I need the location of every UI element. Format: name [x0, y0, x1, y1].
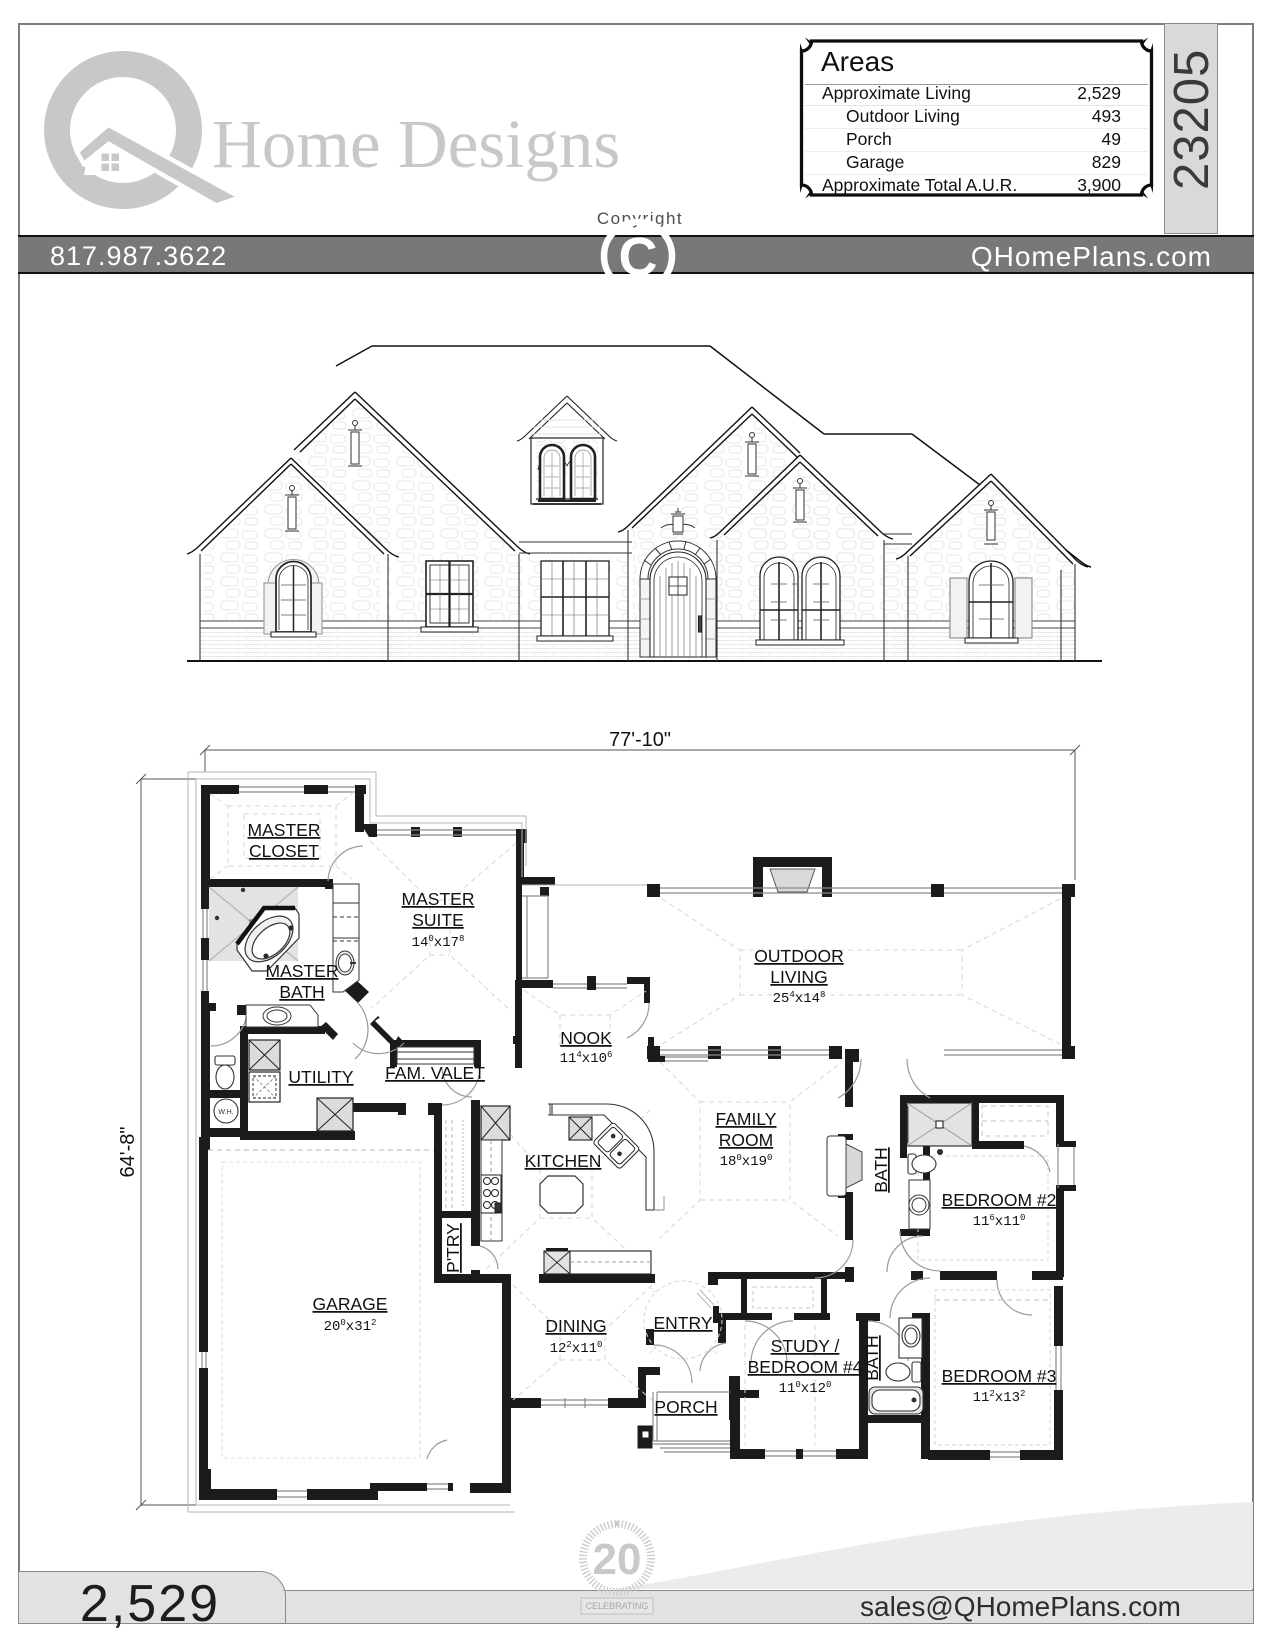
svg-text:NOOK: NOOK	[560, 1028, 612, 1048]
svg-text:FAMILY: FAMILY	[716, 1109, 777, 1129]
svg-text:FAM. VALET: FAM. VALET	[385, 1063, 485, 1083]
svg-text:W.H.: W.H.	[218, 1109, 233, 1116]
svg-text:140x178: 140x178	[412, 934, 465, 951]
svg-text:MASTER: MASTER	[266, 961, 339, 981]
svg-text:P'TRY: P'TRY	[443, 1223, 463, 1273]
svg-text:116x110: 116x110	[973, 1213, 1026, 1230]
svg-text:MASTER: MASTER	[402, 889, 475, 909]
svg-text:122x110: 122x110	[550, 1340, 603, 1357]
svg-text:114x106: 114x106	[560, 1050, 613, 1067]
svg-text:77'-10": 77'-10"	[609, 729, 671, 751]
svg-text:110x120: 110x120	[779, 1380, 832, 1397]
svg-text:GARAGE: GARAGE	[313, 1294, 388, 1314]
svg-text:112x132: 112x132	[973, 1389, 1026, 1406]
svg-text:LIVING: LIVING	[770, 967, 827, 987]
svg-text:BEDROOM #3: BEDROOM #3	[942, 1366, 1057, 1386]
svg-text:64'-8": 64'-8"	[117, 1127, 139, 1178]
svg-text:BATH: BATH	[862, 1335, 882, 1380]
svg-text:ENTRY: ENTRY	[654, 1313, 713, 1333]
svg-text:OUTDOOR: OUTDOOR	[754, 946, 843, 966]
svg-text:PORCH: PORCH	[654, 1397, 717, 1417]
svg-text:UTILITY: UTILITY	[288, 1067, 353, 1087]
svg-text:200x312: 200x312	[324, 1318, 377, 1335]
svg-text:254x148: 254x148	[773, 990, 826, 1007]
svg-text:KITCHEN: KITCHEN	[525, 1151, 602, 1171]
svg-text:CELEBRATING: CELEBRATING	[586, 1601, 649, 1611]
svg-text:DINING: DINING	[545, 1316, 606, 1336]
svg-text:BATH: BATH	[871, 1147, 891, 1192]
svg-text:20: 20	[593, 1535, 642, 1584]
svg-text:STUDY /: STUDY /	[771, 1336, 840, 1356]
svg-text:SUITE: SUITE	[412, 910, 464, 930]
svg-text:BATH: BATH	[279, 982, 324, 1002]
svg-text:MASTER: MASTER	[248, 820, 321, 840]
svg-text:180x190: 180x190	[720, 1153, 773, 1170]
svg-text:BEDROOM #4: BEDROOM #4	[748, 1357, 863, 1377]
svg-text:ROOM: ROOM	[719, 1130, 773, 1150]
svg-text:BEDROOM #2: BEDROOM #2	[942, 1190, 1057, 1210]
svg-text:CLOSET: CLOSET	[249, 841, 319, 861]
